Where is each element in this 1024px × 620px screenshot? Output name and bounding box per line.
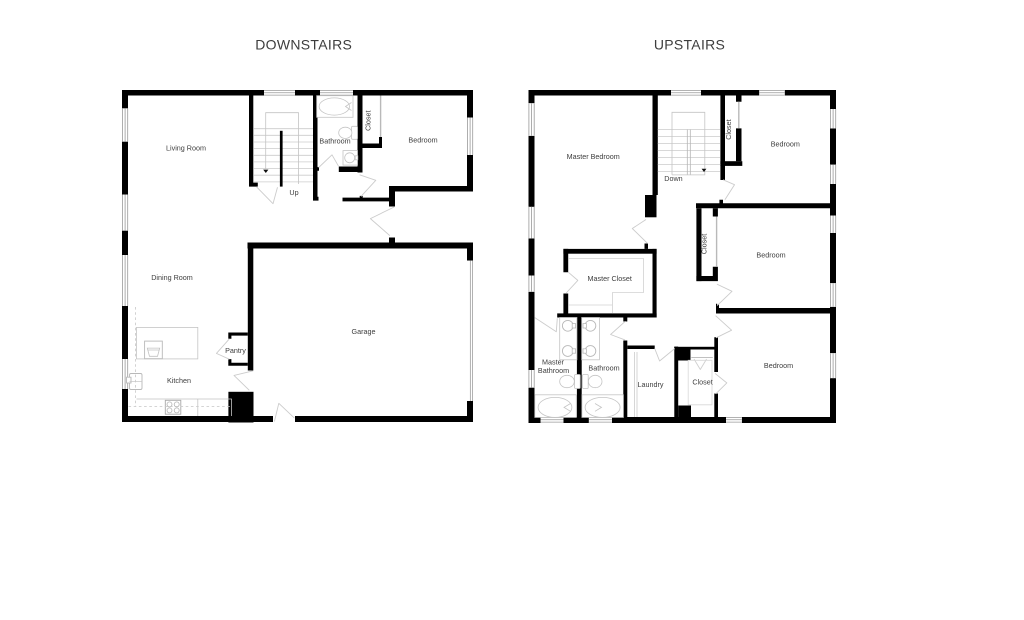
svg-text:Bedroom: Bedroom [764,361,793,370]
svg-text:Closet: Closet [692,377,712,386]
svg-text:Kitchen: Kitchen [167,376,191,385]
svg-text:UPSTAIRS: UPSTAIRS [654,37,725,53]
svg-text:Up: Up [289,188,298,197]
svg-text:Master Bedroom: Master Bedroom [567,152,620,161]
svg-text:Bedroom: Bedroom [771,139,800,148]
svg-text:Dining Room: Dining Room [151,273,193,282]
svg-text:Laundry: Laundry [638,380,664,389]
svg-text:Bathroom: Bathroom [588,364,619,373]
svg-text:Closet: Closet [724,119,733,139]
svg-text:Closet: Closet [364,111,373,131]
svg-text:DOWNSTAIRS: DOWNSTAIRS [255,37,352,53]
svg-text:Pantry: Pantry [225,346,246,355]
svg-text:Bedroom: Bedroom [756,251,785,260]
svg-text:Closet: Closet [700,234,709,254]
svg-text:Bedroom: Bedroom [408,135,437,144]
svg-text:Garage: Garage [352,327,376,336]
svg-text:Down: Down [664,174,682,183]
svg-text:Living Room: Living Room [166,143,206,152]
svg-text:Bathroom: Bathroom [319,136,350,145]
svg-text:Master Closet: Master Closet [588,274,632,283]
svg-text:Bathroom: Bathroom [538,366,569,375]
